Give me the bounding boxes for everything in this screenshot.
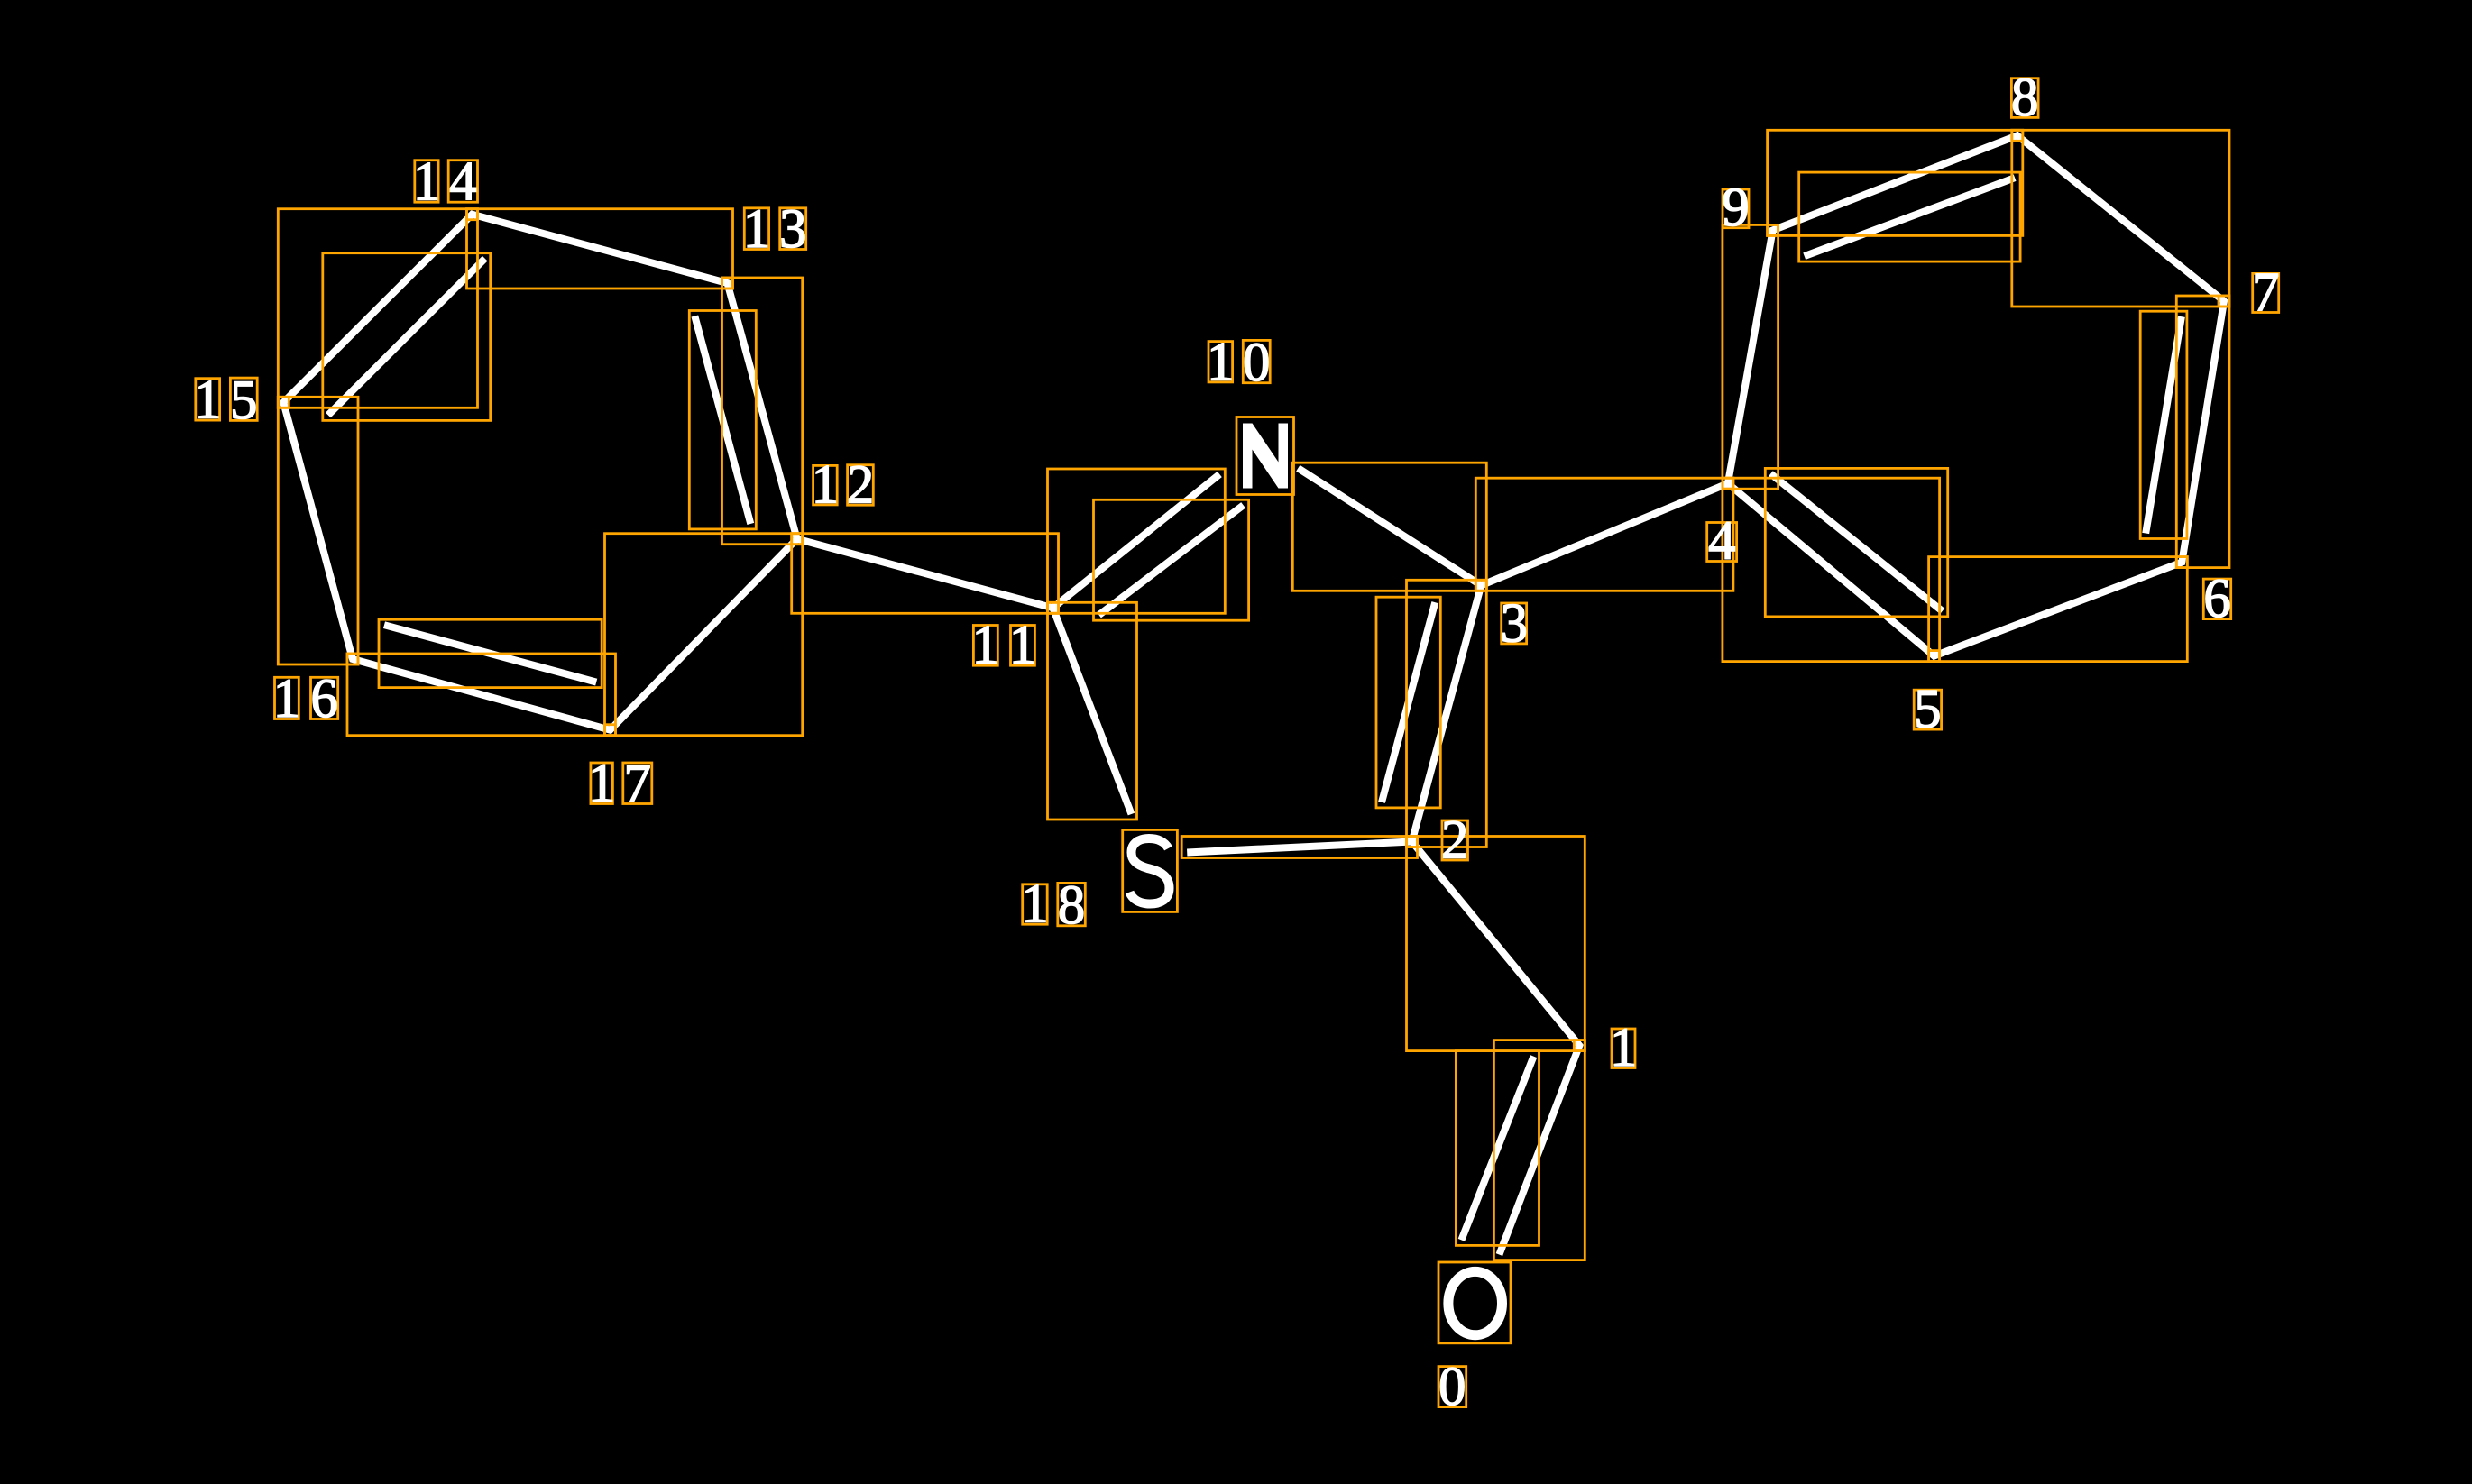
svg-text:1: 1 (1610, 1018, 1638, 1078)
svg-text:7: 7 (2252, 262, 2280, 323)
svg-text:8: 8 (2011, 68, 2039, 128)
svg-text:1: 1 (273, 669, 301, 729)
svg-text:1: 1 (1021, 875, 1049, 935)
svg-text:1: 1 (588, 754, 616, 814)
svg-text:1: 1 (812, 454, 840, 515)
svg-text:6: 6 (310, 669, 338, 729)
svg-text:1: 1 (194, 371, 222, 431)
svg-text:1: 1 (972, 616, 1000, 676)
svg-text:3: 3 (1500, 593, 1528, 654)
svg-text:6: 6 (2203, 569, 2231, 629)
svg-text:8: 8 (1058, 875, 1086, 936)
svg-text:1: 1 (1009, 616, 1037, 676)
svg-text:0: 0 (1438, 1357, 1466, 1417)
svg-text:2: 2 (1441, 810, 1469, 870)
svg-text:9: 9 (1722, 178, 1750, 238)
svg-text:4: 4 (449, 152, 477, 213)
svg-text:1: 1 (413, 152, 441, 213)
svg-text:0: 0 (1243, 333, 1271, 393)
svg-text:2: 2 (847, 455, 875, 516)
svg-text:7: 7 (624, 754, 652, 814)
svg-text:4: 4 (1708, 511, 1736, 572)
svg-text:5: 5 (230, 371, 258, 431)
svg-text:1: 1 (1207, 332, 1235, 392)
svg-text:5: 5 (1914, 680, 1942, 740)
svg-text:1: 1 (743, 199, 771, 260)
svg-text:3: 3 (779, 199, 807, 260)
